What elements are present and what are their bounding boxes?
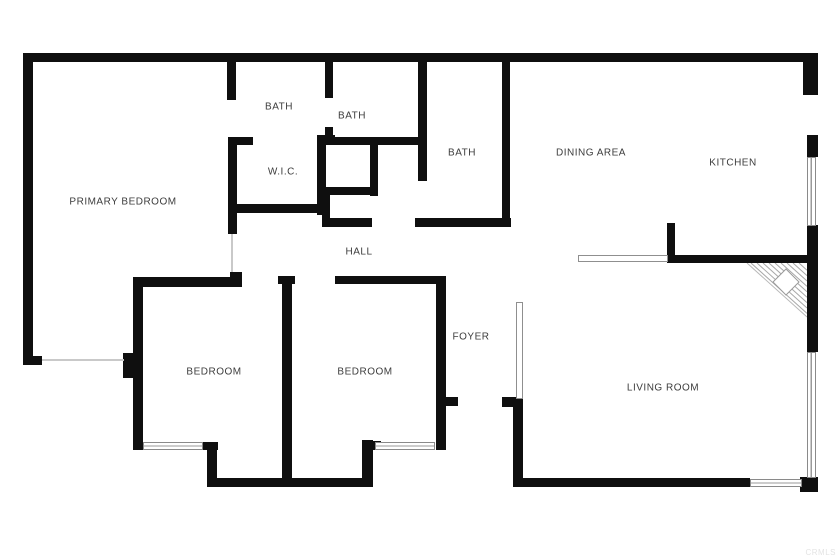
wall bbox=[335, 276, 446, 284]
room-label-bath-second: BATH bbox=[338, 111, 366, 122]
wall bbox=[513, 397, 523, 487]
wall bbox=[322, 218, 372, 227]
room-label-primary-bedroom: PRIMARY BEDROOM bbox=[69, 197, 176, 208]
wall bbox=[502, 62, 510, 227]
wall bbox=[123, 353, 133, 378]
wall bbox=[23, 53, 818, 62]
room-label-bedroom-left: BEDROOM bbox=[186, 367, 241, 378]
window bbox=[143, 442, 203, 450]
room-label-bedroom-right: BEDROOM bbox=[337, 367, 392, 378]
wall bbox=[322, 187, 372, 195]
wall bbox=[415, 218, 511, 227]
room-label-foyer: FOYER bbox=[453, 332, 490, 343]
wall bbox=[325, 62, 333, 98]
wall bbox=[418, 62, 427, 181]
wall bbox=[800, 477, 818, 492]
opening-line bbox=[231, 234, 233, 272]
wall bbox=[228, 137, 237, 234]
floor-plan: PRIMARY BEDROOM BATH BATH W.I.C. BATH DI… bbox=[0, 0, 839, 560]
room-label-bath-primary: BATH bbox=[265, 102, 293, 113]
wall bbox=[133, 277, 143, 450]
wall bbox=[807, 225, 818, 352]
wall bbox=[807, 135, 818, 157]
wall bbox=[513, 478, 750, 487]
wall bbox=[803, 53, 818, 95]
wall bbox=[227, 62, 236, 100]
wall bbox=[282, 276, 292, 487]
wall bbox=[228, 204, 325, 213]
wall bbox=[230, 272, 242, 278]
wall bbox=[436, 276, 446, 450]
room-label-dining-area: DINING AREA bbox=[556, 148, 626, 159]
wall bbox=[436, 397, 458, 406]
room-label-living-room: LIVING ROOM bbox=[627, 383, 699, 394]
room-label-kitchen: KITCHEN bbox=[709, 158, 756, 169]
room-label-bath-hall: BATH bbox=[448, 148, 476, 159]
kitchen-counter bbox=[578, 255, 668, 262]
wall bbox=[133, 277, 242, 287]
opening-line bbox=[42, 359, 124, 361]
watermark: CRMLS bbox=[805, 548, 836, 557]
wall bbox=[23, 53, 33, 365]
window bbox=[750, 479, 802, 487]
room-label-hall: HALL bbox=[345, 247, 372, 258]
wall bbox=[667, 255, 818, 263]
wall bbox=[207, 478, 373, 487]
window bbox=[375, 442, 435, 450]
window bbox=[807, 352, 816, 478]
window bbox=[807, 157, 816, 226]
door-leaf bbox=[516, 302, 523, 399]
wall bbox=[23, 356, 42, 365]
room-label-wic: W.I.C. bbox=[268, 167, 298, 178]
wall bbox=[667, 223, 675, 263]
wall bbox=[228, 137, 253, 145]
